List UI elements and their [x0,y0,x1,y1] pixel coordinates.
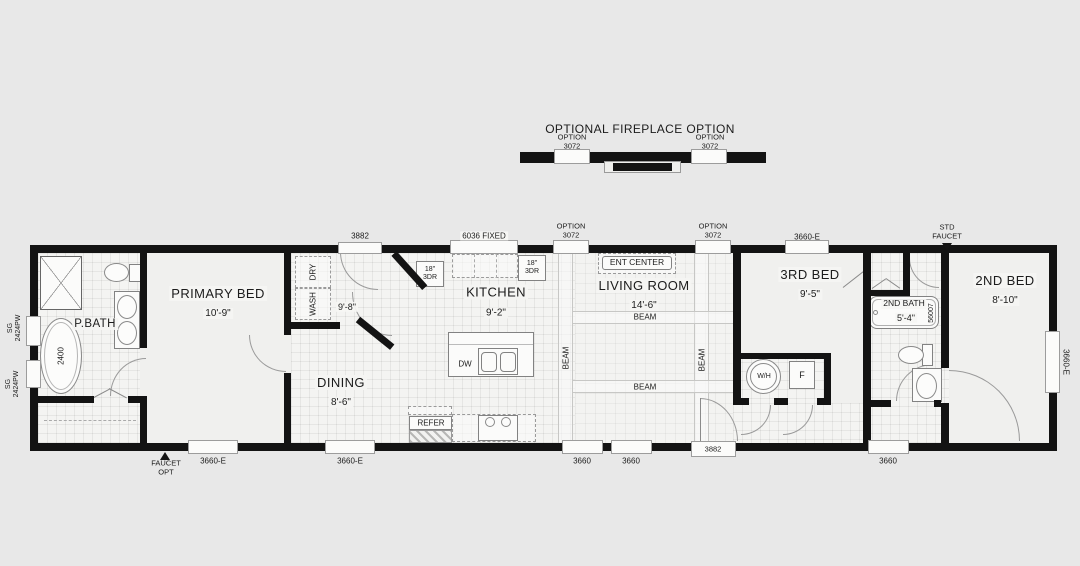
wall-exterior-top [30,245,1057,253]
burner-icon-2 [501,417,511,427]
beam-label-left: BEAM [561,347,570,370]
room-label-dining: DINING 8'-6" [315,374,367,410]
sink-bowl-bath2-icon [916,373,937,399]
window-bottom-primary-1-label: 3660-E [200,456,226,465]
washer-label: WASH [308,292,317,316]
room-label-living: LIVING ROOM 14'-6" [596,277,691,313]
wall-bed3-right [863,253,871,443]
wall-bath2-bottom-b [934,400,941,407]
window-top-option-left-label: OPTION3072 [557,222,586,239]
window-top-bed3-label: 3660-E [794,232,820,241]
window-top-option-right [695,240,731,254]
room-label-kitchen: KITCHEN 9'-2" [464,284,528,321]
cabinet-divider-2 [496,254,497,278]
window-kitchen-fixed [450,240,518,254]
bath2-name-label: 2ND BATH [881,299,926,309]
cabinet-divider-1 [474,254,475,278]
door-entry-top-label: 3882 [351,231,369,240]
sink-bowl-icon-1 [117,295,137,319]
door-leaf-entry-bottom [700,398,701,441]
room-label-primary-bed: PRIMARY BED 10'-9" [169,285,267,321]
fireplace-window-left [554,149,590,164]
window-left-bath-2 [26,360,41,388]
wall-bath2-bed2-lower [941,403,949,443]
window-top-bed3 [785,240,829,254]
utility-dim-label: 9'-8" [336,302,358,312]
room-label-pbath: P.BATH [72,314,118,332]
room-label-bed3: 3RD BED 9'-5" [778,266,841,302]
sink-basin-icon-2 [500,352,516,372]
window-bottom-bed2 [868,440,909,454]
range-icon [478,415,518,441]
window-bottom-primary-2-label: 3660-E [337,456,363,465]
ent-center-label: ENT CENTER [610,258,664,268]
beam-label-right: BEAM [697,349,706,372]
floor-plan-canvas: OPTIONAL FIREPLACE OPTION OPTION3072 OPT… [0,0,1080,566]
window-left-bath-1 [26,316,41,346]
window-left-bath-1-label: SG2424PW [7,315,23,342]
wall-primary-closet-a [38,396,94,403]
std-faucet-arrow-icon [942,243,952,251]
window-bottom-living-1-label: 3660 [573,456,591,465]
refrigerator-hatch [409,430,452,443]
furnace-label: F [799,370,805,380]
window-right-bed2 [1045,331,1060,393]
wall-hall-closet-divider [903,253,910,293]
tub-model-label: 2400 [56,347,65,365]
sink-bowl-icon-2 [117,321,137,345]
window-left-bath-2-label: SG2424PW [5,371,21,398]
sink-basin-icon-1 [481,352,497,372]
wall-pbath-right-lower [140,396,147,443]
window-bottom-living-1 [562,440,603,454]
wall-utility-stub-1 [733,398,749,405]
refrigerator-label: REFER [417,418,444,427]
faucet-opt-label: FAUCETOPT [151,459,181,476]
door-opening-entry-top [338,242,382,254]
cabinet-18-3dr-right-label: 18"3DR [525,260,539,276]
wall-utility-stub-3 [817,398,831,405]
bath2-dim-label: 5'-4" [895,313,917,323]
window-bottom-living-2 [611,440,652,454]
window-bottom-primary-1 [188,440,238,454]
wall-utility-closet-top [741,353,831,359]
wall-laundry-bottom [284,322,340,329]
beam-label-lower: BEAM [632,382,659,391]
refrigerator-outline [408,406,452,415]
window-kitchen-fixed-label: 6036 FIXED [460,231,508,240]
door-entry-bottom-label: 3882 [705,446,722,455]
window-top-option-right-label: OPTION3072 [699,222,728,239]
window-bottom-bed2-label: 3660 [879,456,897,465]
wall-primary-right-lower [284,373,291,443]
dishwasher-label: DW [458,359,471,368]
island-counter-line [449,344,533,345]
wall-hall-closet-bottom [863,290,910,296]
room-label-bed2: 2ND BED 8'-10" [973,272,1036,308]
shower-icon [40,256,82,310]
beam-label-upper: BEAM [632,312,659,321]
cabinet-18-3dr-left-label: 18"3DR [423,266,437,282]
tub2-model-label: 56007 [928,303,936,322]
closet-rod-line [44,420,136,421]
fireplace-firebox [613,163,672,171]
std-faucet-label: STDFAUCET [932,223,962,240]
burner-icon-1 [485,417,495,427]
toilet-bowl-bath2-icon [898,346,924,364]
wall-bath2-bottom-a [871,400,891,407]
tub-faucet-icon [873,310,878,315]
wall-primary-closet-b [128,396,140,403]
wall-exterior-left [30,245,38,451]
upper-cabinets [452,254,518,278]
window-right-bed2-label: 3660-E [1061,349,1070,375]
fireplace-window-right [691,149,727,164]
window-top-option-left [553,240,589,254]
wall-utility-stub-2 [774,398,788,405]
wall-living-bed3 [733,253,741,403]
wall-pbath-right-upper [140,253,147,348]
water-heater-label: W/H [757,373,771,381]
window-bottom-living-2-label: 3660 [622,456,640,465]
wall-bath2-bed2-upper [941,253,949,368]
window-bottom-primary-2 [325,440,375,454]
toilet-bowl-pbath-icon [104,263,129,282]
dryer-label: DRY [308,264,317,281]
